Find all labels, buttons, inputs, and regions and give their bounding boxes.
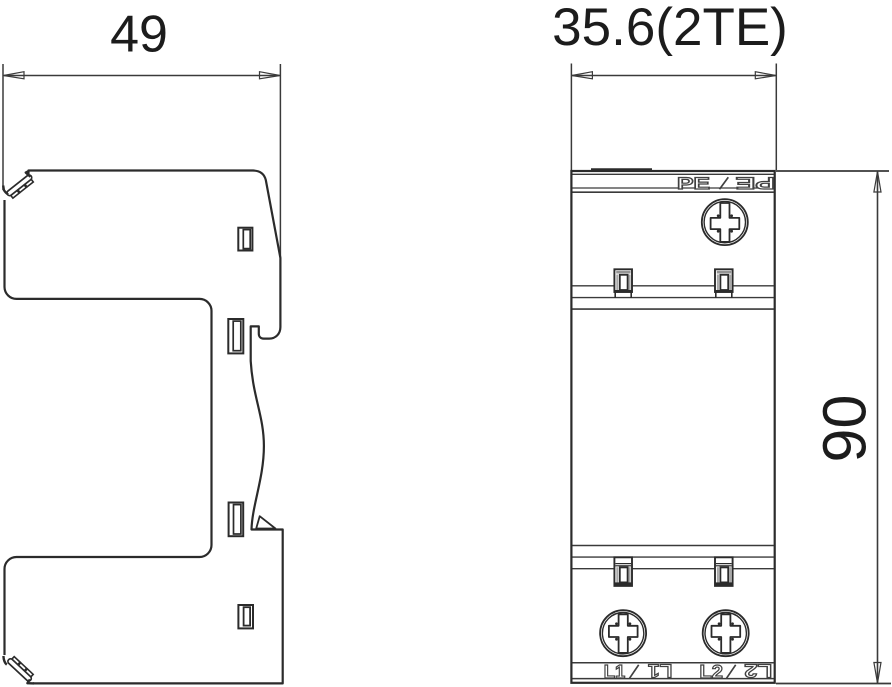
svg-text:L1: L1 [648,661,673,682]
svg-text:PE: PE [677,175,710,193]
svg-text:L1: L1 [604,661,626,682]
svg-text:PE: PE [736,173,776,191]
svg-text:35.6(2TE): 35.6(2TE) [552,0,788,57]
svg-text:49: 49 [110,6,168,64]
svg-text:90: 90 [810,395,878,463]
svg-text:L2: L2 [744,661,772,682]
svg-text:L2: L2 [700,661,724,682]
